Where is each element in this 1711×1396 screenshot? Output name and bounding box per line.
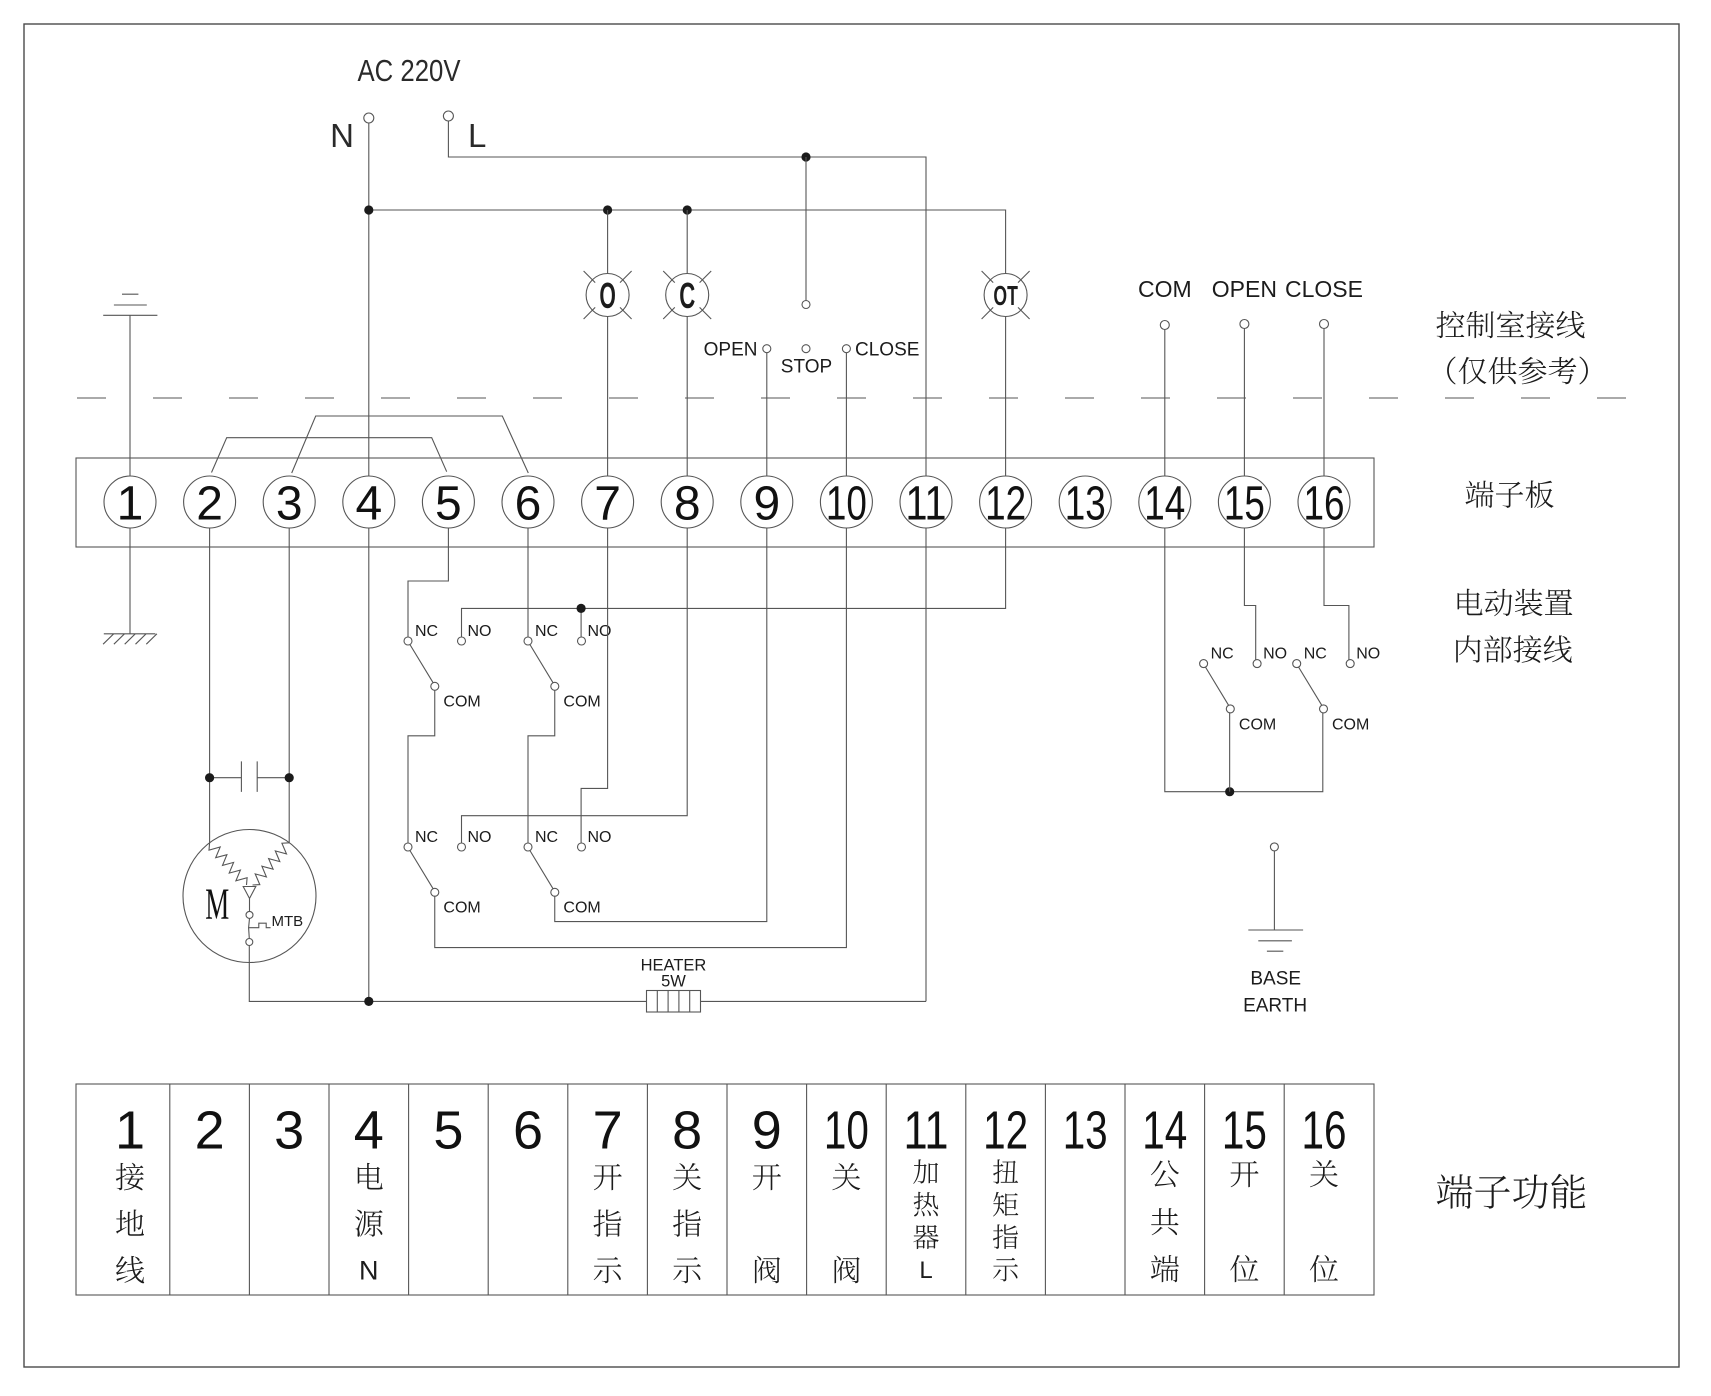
svg-text:STOP: STOP [781, 357, 832, 378]
svg-text:NC: NC [1304, 646, 1327, 663]
svg-text:9: 9 [752, 1101, 782, 1161]
svg-text:NC: NC [535, 623, 558, 640]
svg-text:NO: NO [588, 829, 612, 846]
svg-text:15: 15 [1222, 1101, 1267, 1161]
svg-text:1: 1 [117, 477, 144, 530]
svg-text:OT: OT [993, 280, 1018, 311]
svg-text:NC: NC [1211, 646, 1234, 663]
svg-text:6: 6 [515, 477, 542, 530]
svg-text:COM: COM [563, 694, 600, 711]
svg-text:1: 1 [115, 1101, 145, 1161]
svg-text:OPEN: OPEN [1212, 276, 1277, 302]
svg-text:15: 15 [1224, 477, 1265, 530]
svg-text:8: 8 [674, 477, 701, 530]
svg-text:11: 11 [906, 477, 947, 530]
svg-text:13: 13 [1065, 477, 1106, 530]
svg-text:OPEN: OPEN [704, 340, 758, 361]
svg-text:COM: COM [1239, 716, 1276, 733]
svg-text:14: 14 [1142, 1101, 1187, 1161]
svg-text:EARTH: EARTH [1243, 996, 1307, 1017]
svg-text:2: 2 [196, 477, 223, 530]
svg-text:14: 14 [1144, 477, 1185, 530]
svg-text:NC: NC [535, 829, 558, 846]
svg-text:3: 3 [274, 1101, 304, 1161]
svg-text:12: 12 [983, 1101, 1028, 1161]
svg-text:COM: COM [1138, 276, 1192, 302]
svg-text:L: L [919, 1257, 932, 1284]
svg-text:9: 9 [753, 477, 780, 530]
svg-text:2: 2 [195, 1101, 225, 1161]
svg-text:16: 16 [1304, 477, 1345, 530]
svg-text:O: O [599, 275, 616, 316]
svg-text:L: L [468, 117, 486, 154]
svg-text:4: 4 [354, 1101, 384, 1161]
svg-text:7: 7 [593, 1101, 623, 1161]
svg-text:12: 12 [985, 477, 1026, 530]
svg-text:COM: COM [443, 900, 480, 917]
svg-text:10: 10 [826, 477, 867, 530]
svg-text:NC: NC [415, 623, 438, 640]
svg-text:16: 16 [1302, 1101, 1347, 1161]
svg-text:C: C [679, 275, 695, 316]
svg-text:N: N [359, 1256, 379, 1286]
svg-text:NO: NO [468, 623, 492, 640]
svg-text:COM: COM [1332, 716, 1369, 733]
svg-text:BASE: BASE [1250, 969, 1301, 990]
svg-text:4: 4 [355, 477, 382, 530]
svg-text:CLOSE: CLOSE [855, 340, 919, 361]
svg-text:5: 5 [433, 1101, 463, 1161]
svg-text:13: 13 [1063, 1101, 1108, 1161]
svg-text:N: N [330, 117, 354, 154]
svg-text:NO: NO [1263, 646, 1287, 663]
svg-text:NC: NC [415, 829, 438, 846]
svg-text:AC 220V: AC 220V [358, 53, 461, 88]
svg-text:5: 5 [435, 477, 462, 530]
svg-text:MTB: MTB [272, 913, 304, 930]
svg-text:COM: COM [443, 694, 480, 711]
svg-text:NO: NO [468, 829, 492, 846]
svg-text:8: 8 [672, 1101, 702, 1161]
svg-text:7: 7 [594, 477, 621, 530]
svg-text:CLOSE: CLOSE [1285, 276, 1363, 302]
svg-text:6: 6 [513, 1101, 543, 1161]
svg-text:10: 10 [824, 1101, 869, 1161]
svg-text:5W: 5W [661, 973, 686, 991]
svg-text:M: M [205, 880, 229, 929]
svg-text:COM: COM [563, 900, 600, 917]
svg-text:11: 11 [904, 1101, 949, 1161]
svg-text:NO: NO [1356, 646, 1380, 663]
svg-text:3: 3 [276, 477, 303, 530]
